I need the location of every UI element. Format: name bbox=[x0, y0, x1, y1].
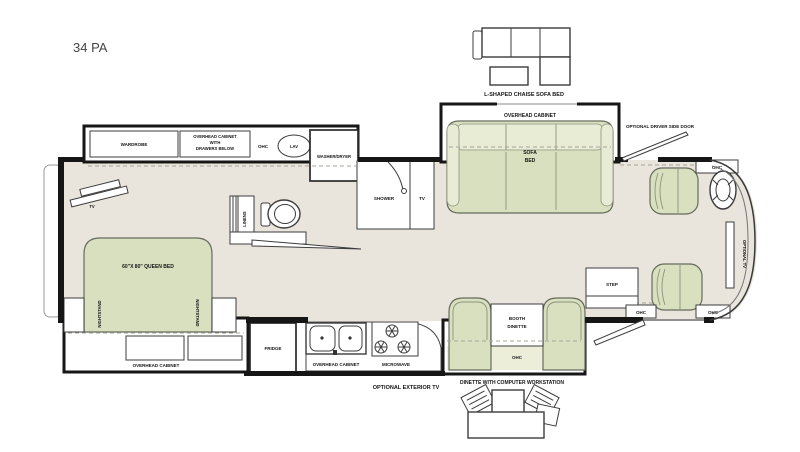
sofa-armrest-left bbox=[447, 124, 459, 206]
floorplan-drawing: 34 PA L-SHAPED CHAISE SOFA BED WARDROBE … bbox=[0, 0, 800, 452]
shower-head bbox=[402, 189, 407, 194]
booth-label-line2: DINETTE bbox=[507, 324, 526, 329]
front-ohc-bottom-left-label: OHC bbox=[636, 310, 647, 315]
driver-side-door bbox=[622, 132, 688, 161]
chaise-armrest bbox=[473, 31, 482, 59]
steering-wheel bbox=[710, 171, 736, 209]
sink-drain-right bbox=[348, 336, 351, 339]
kitchen: FRIDGE OVERHEAD CABINET MICROWAVE OPTION… bbox=[250, 322, 441, 391]
bath-ohc-label: OHC bbox=[258, 144, 269, 149]
bed-drawer-right bbox=[188, 336, 242, 360]
bath-tv-cabinet bbox=[410, 161, 434, 229]
bottom-wall-1 bbox=[585, 317, 643, 323]
dinette-slide: BOOTH DINETTE OHC bbox=[443, 298, 585, 374]
rear-wall bbox=[58, 157, 64, 323]
sink-drain-left bbox=[320, 336, 323, 339]
nightstand-right bbox=[212, 298, 236, 332]
workstation-option bbox=[461, 385, 560, 438]
entry-door bbox=[594, 320, 645, 345]
kitchen-bottom-wall bbox=[244, 371, 445, 376]
floorplan-page: 34 PA L-SHAPED CHAISE SOFA BED WARDROBE … bbox=[0, 0, 800, 452]
sofa-ohc-label: OVERHEAD CABINET bbox=[504, 113, 556, 119]
sofa-label-line1: SOFA bbox=[523, 150, 537, 156]
exterior-tv-label: OPTIONAL EXTERIOR TV bbox=[373, 385, 440, 391]
sink-unit bbox=[306, 323, 366, 354]
chaise-label: L-SHAPED CHAISE SOFA BED bbox=[484, 92, 564, 98]
step-label: STEP bbox=[606, 282, 618, 287]
bath-tv-label: TV bbox=[419, 196, 425, 201]
chaise-sofa-body bbox=[482, 28, 570, 57]
microwave-label: MICROWAVE bbox=[382, 362, 410, 367]
chaise-section bbox=[540, 57, 570, 85]
kitchen-ohc-label: OVERHEAD CABINET bbox=[313, 362, 360, 367]
chaise-sofa-option: L-SHAPED CHAISE SOFA BED bbox=[473, 28, 570, 98]
oh-drawers-line2: WITH bbox=[210, 140, 221, 145]
shower-stall bbox=[357, 161, 410, 229]
nightstand-left bbox=[64, 298, 84, 332]
bed-drawer-left bbox=[126, 336, 184, 360]
top-wall-1 bbox=[58, 157, 84, 162]
fridge-label: FRIDGE bbox=[264, 346, 281, 351]
bedroom-tv-label: TV bbox=[89, 204, 95, 209]
driver-door-label: OPTIONAL DRIVER SIDE DOOR bbox=[626, 124, 695, 129]
shower-label: SHOWER bbox=[374, 196, 395, 201]
kitchen-top-wall bbox=[246, 317, 308, 323]
dinette-ohc-label: OHC bbox=[512, 355, 523, 360]
booth-label-line1: BOOTH bbox=[509, 316, 525, 321]
top-wall-2 bbox=[358, 157, 441, 162]
nightstand-right-label: NIGHTSTAND bbox=[195, 299, 200, 326]
workstation-hutch bbox=[492, 390, 524, 414]
workstation-desk bbox=[468, 412, 544, 438]
top-wall-4 bbox=[658, 157, 712, 162]
optional-tv bbox=[726, 222, 734, 288]
dinette-bench-left bbox=[449, 298, 491, 370]
page-title: 34 PA bbox=[73, 40, 108, 55]
queen-bed bbox=[84, 238, 212, 332]
oh-drawers-line1: OVERHEAD CABINET bbox=[193, 134, 237, 139]
wardrobe-label: WARDROBE bbox=[121, 142, 148, 147]
workstation-label: DINETTE WITH COMPUTER WORKSTATION bbox=[460, 380, 564, 386]
entry-step bbox=[586, 268, 638, 308]
oh-drawers-line3: DRAWERS BELOW bbox=[196, 146, 234, 151]
washer-dryer-label: WASHER/DRYER bbox=[317, 154, 351, 159]
lav-label: LAV bbox=[290, 144, 298, 149]
sofa-back-cushions bbox=[457, 124, 603, 150]
sink-faucet bbox=[333, 350, 337, 355]
nightstand-left-label: NIGHTSTAND bbox=[97, 300, 102, 327]
bed-ohc-label: OVERHEAD CABINET bbox=[133, 363, 180, 368]
chaise-ottoman bbox=[490, 67, 528, 85]
linens-label: LINENS bbox=[242, 211, 247, 227]
sofa-label-line2: BED bbox=[525, 158, 536, 164]
sofa-slide: OVERHEAD CABINET SOFA BED bbox=[441, 101, 619, 213]
sofa-armrest-right bbox=[601, 124, 613, 206]
dinette-bench-right bbox=[543, 298, 585, 370]
optional-tv-label: OPTIONAL TV bbox=[742, 240, 747, 268]
workstation-chair-left bbox=[461, 385, 495, 416]
queen-bed-label: 60"X 80" QUEEN BED bbox=[122, 264, 174, 270]
